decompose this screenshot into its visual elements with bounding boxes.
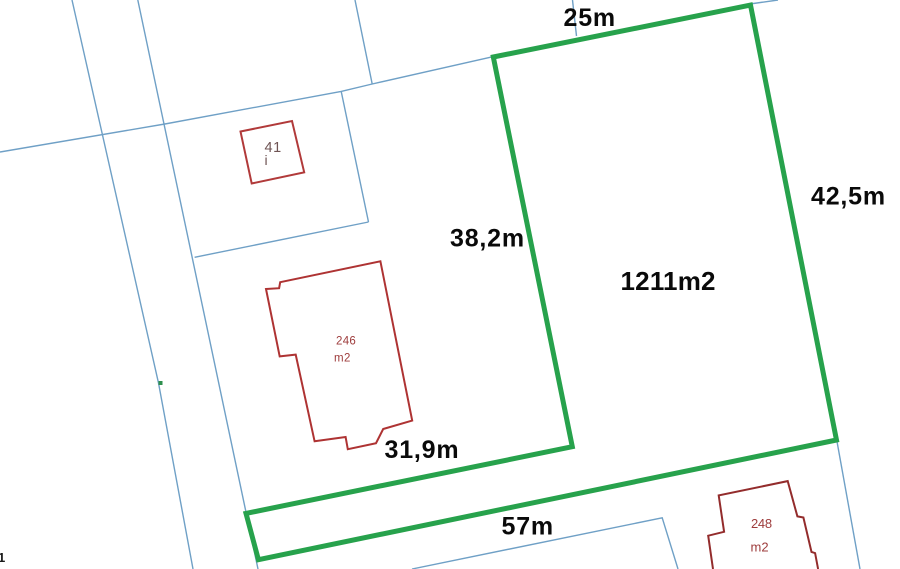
svg-text:1211m2: 1211m2 <box>621 266 716 296</box>
svg-text:42,5m: 42,5m <box>811 183 886 211</box>
svg-text:25m: 25m <box>564 4 616 32</box>
svg-text:m2: m2 <box>751 540 769 555</box>
svg-text:248: 248 <box>751 516 772 531</box>
svg-text:57m: 57m <box>502 512 554 540</box>
svg-text:i: i <box>265 152 268 168</box>
svg-text:38,2m: 38,2m <box>450 225 525 253</box>
svg-text:m2: m2 <box>334 352 351 364</box>
svg-text:1: 1 <box>0 550 5 565</box>
svg-text:31,9m: 31,9m <box>385 436 460 464</box>
svg-text:246: 246 <box>336 336 356 348</box>
